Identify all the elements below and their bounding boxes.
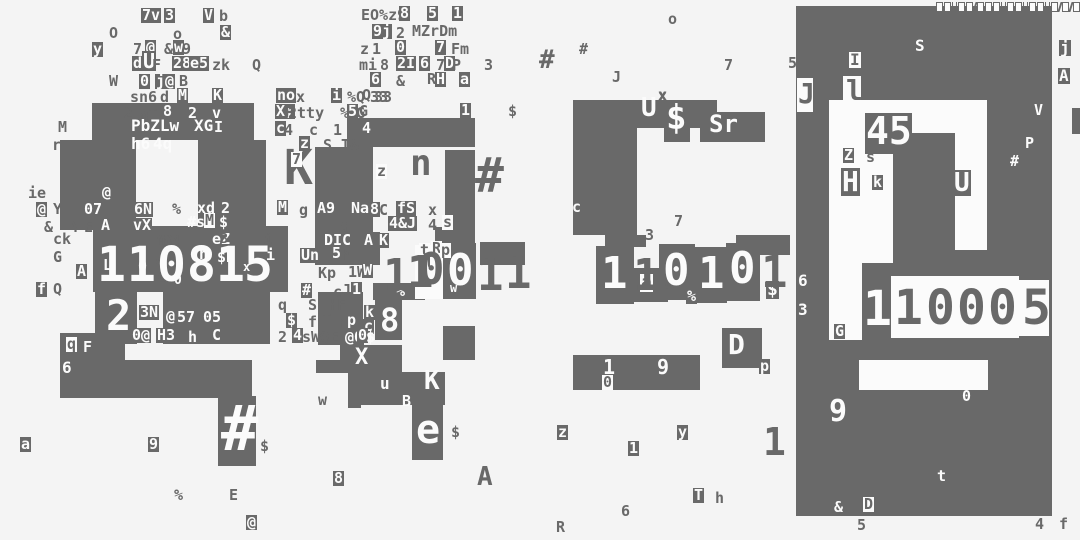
big-number-digit-group1: 1: [127, 241, 156, 289]
noise-char: 7: [724, 58, 733, 73]
noise-char: k: [872, 175, 883, 190]
noise-char: $: [666, 101, 686, 135]
noise-char: S: [323, 138, 332, 153]
noise-char: h: [341, 248, 350, 263]
noise-char: U: [641, 95, 657, 121]
noise-char: 5: [427, 6, 438, 21]
noise-char: 5: [788, 56, 797, 71]
noise-char: sn6: [130, 90, 157, 105]
big-number-digit-group2: 0: [447, 249, 474, 293]
noise-char: $: [366, 330, 375, 345]
noise-char: U: [953, 170, 971, 196]
noise-char: &: [220, 25, 231, 40]
noise-char: 4&J: [388, 216, 417, 231]
noise-char: A: [100, 218, 111, 233]
noise-char: c: [572, 200, 581, 215]
noise-char: 3: [798, 302, 808, 318]
noise-char: #: [539, 47, 555, 73]
noise-char: 7: [435, 40, 446, 55]
noise-char: K: [424, 368, 440, 394]
noise-char: 2: [106, 295, 131, 337]
noise-char: h: [188, 330, 197, 345]
noise-char: XG: [194, 118, 213, 134]
noise-char: j@: [155, 74, 175, 89]
big-number-digit-group4: 0: [926, 284, 955, 332]
noise-char: s: [866, 150, 875, 165]
top-right-marker-strip: [936, 2, 1080, 12]
noise-char: A9: [316, 201, 336, 216]
noise-char: 1: [372, 42, 381, 57]
noise-char: &: [44, 220, 53, 235]
noise-char: I: [213, 120, 224, 135]
big-number-digit-group3: 0: [663, 249, 690, 293]
noise-char: #: [579, 42, 588, 57]
noise-char: 0@: [131, 328, 151, 343]
noise-char: e: [416, 410, 440, 450]
noise-char: $: [508, 104, 517, 119]
big-number-digit-group2: 1: [477, 254, 504, 298]
noise-char: %: [174, 488, 183, 503]
big-number-digit-group4: 0: [957, 284, 986, 332]
noise-char: 3: [164, 8, 175, 23]
noise-char: c: [309, 123, 318, 138]
noise-char: 1: [763, 423, 786, 461]
strip-box-icon: [958, 2, 965, 12]
noise-char: a: [20, 437, 31, 452]
noise-char: Y: [53, 202, 62, 217]
noise-char: WQ: [311, 330, 329, 345]
noise-char: Sr: [709, 112, 738, 136]
noise-char: 7v: [141, 8, 161, 23]
noise-char: V: [1034, 103, 1043, 118]
noise-char: 07: [83, 202, 103, 217]
strip-bar-icon: [1023, 2, 1028, 12]
noise-char: #: [475, 152, 504, 200]
noise-char: p: [346, 313, 357, 328]
noise-char: o: [668, 12, 677, 27]
strip-box-icon: [944, 2, 951, 12]
noise-char: 0: [602, 375, 613, 390]
noise-char: 8: [399, 6, 410, 21]
big-number-digit-group1: 8: [187, 241, 216, 289]
noise-char: h: [715, 491, 724, 506]
strip-box-icon: [1015, 2, 1022, 12]
noise-char: q: [66, 337, 77, 352]
noise-char: W: [109, 74, 118, 89]
noise-char: y: [92, 42, 103, 57]
noise-char: H: [435, 72, 446, 87]
noise-char: T: [693, 488, 704, 503]
noise-char: 6N: [133, 202, 153, 217]
big-number-digit-group1: 0: [157, 241, 186, 289]
noise-char: #s: [187, 215, 205, 230]
noise-char: MZrDm: [412, 24, 457, 39]
noise-char: @: [36, 202, 47, 217]
noise-char: @: [165, 309, 176, 324]
noise-char: 1: [460, 103, 471, 118]
big-number-digit-group2: 0: [418, 248, 445, 292]
noise-char: 9: [829, 397, 847, 427]
noise-char: E: [229, 488, 238, 503]
noise-char: no: [276, 88, 296, 103]
noise-char: 6: [370, 72, 381, 87]
noise-char: f: [36, 282, 47, 297]
noise-char: M: [204, 213, 215, 228]
noise-char: W: [362, 263, 373, 278]
noise-char: 3: [484, 58, 493, 73]
noise-char: 4: [284, 123, 293, 138]
strip-bar-icon: [952, 2, 957, 12]
noise-char: PbZLw: [131, 118, 179, 134]
noise-char: M: [177, 88, 188, 103]
noise-char: $: [451, 425, 460, 440]
noise-char: i: [331, 88, 342, 103]
noise-char: 3: [645, 228, 654, 243]
noise-char: b: [219, 9, 228, 24]
noise-char: &: [396, 74, 405, 89]
noise-char: zk: [212, 58, 230, 73]
dark-noise-block: [573, 100, 637, 235]
noise-char: t: [937, 469, 946, 484]
noise-char: 7: [674, 214, 683, 229]
strip-bar-icon: [1001, 2, 1006, 12]
big-number-digit-group4: 1: [894, 284, 923, 332]
noise-char: 05: [203, 310, 221, 325]
noise-char: #: [1010, 154, 1019, 169]
noise-char: M: [58, 120, 67, 135]
noise-char: A: [1058, 68, 1070, 84]
noise-char: 4: [1035, 517, 1044, 532]
dark-noise-block: [1072, 108, 1080, 134]
noise-char: J: [798, 80, 815, 108]
noise-char: 1: [628, 441, 639, 456]
strip-box-icon: [1073, 2, 1080, 12]
noise-char: $: [218, 215, 229, 230]
noise-char: z: [557, 425, 568, 440]
noise-char: D: [728, 331, 745, 359]
noise-char: 2tty: [288, 106, 324, 121]
strip-box-icon: [1007, 2, 1014, 12]
noise-char: @: [102, 185, 111, 200]
noise-char: l: [846, 77, 863, 105]
noise-char: D: [863, 497, 874, 512]
noise-char: G: [834, 324, 845, 339]
big-number-digit-group4: 5: [1022, 284, 1051, 332]
noise-char: P: [1025, 136, 1034, 151]
noise-char: 45: [866, 112, 912, 150]
noise-char: A: [477, 464, 493, 490]
noise-char: 5: [857, 518, 866, 533]
noise-char: 4: [428, 218, 437, 233]
big-number-digit-group1: 1: [97, 241, 126, 289]
noise-char: f: [1059, 517, 1068, 532]
noise-char: Kp: [318, 266, 336, 281]
noise-char: C: [211, 328, 222, 343]
noise-char: #: [221, 398, 258, 460]
noise-char: K: [378, 233, 389, 248]
noise-char: B: [402, 394, 411, 409]
noise-char: r: [52, 138, 61, 153]
noise-char: 8: [380, 304, 399, 336]
noise-char: 8: [380, 58, 389, 73]
noise-char: M: [277, 200, 288, 215]
big-number-digit-group2: 1: [505, 252, 532, 296]
noise-char: T&: [341, 138, 359, 153]
noise-char: s: [302, 330, 311, 345]
noise-char: j: [1059, 40, 1071, 56]
noise-char: 8: [333, 471, 344, 486]
noise-char: Un: [300, 248, 320, 263]
noise-char: O: [109, 26, 118, 41]
big-number-digit-group3: 0: [729, 247, 756, 291]
noise-char: I: [849, 52, 861, 68]
light-cutout-block: [859, 360, 988, 390]
noise-char: 0: [139, 74, 150, 89]
strip-box-icon: [1029, 2, 1036, 12]
big-number-digit-group1: 1: [216, 241, 245, 289]
noise-char: Q: [53, 282, 62, 297]
noise-char: Na: [350, 201, 370, 216]
noise-char: Y: [71, 220, 80, 235]
noise-char: p: [759, 359, 770, 374]
noise-char: 1: [351, 282, 362, 297]
noise-char: 6: [798, 273, 808, 289]
noise-char: 2: [278, 330, 287, 345]
noise-char: F: [83, 340, 92, 355]
noise-char: R: [556, 520, 565, 535]
noise-char: S: [915, 38, 925, 54]
noise-char: C: [379, 203, 388, 218]
noise-char: 33: [370, 90, 388, 105]
noise-char: &: [834, 500, 843, 515]
noise-char: e5: [189, 56, 209, 71]
big-number-digit-group1: 5: [244, 241, 273, 289]
noise-char: 7: [291, 152, 302, 167]
noise-char: ck: [53, 232, 71, 247]
noise-char: x: [296, 90, 305, 105]
noise-char: F: [152, 58, 161, 73]
noise-char: K: [212, 88, 223, 103]
big-number-digit-group3: 1: [601, 252, 628, 296]
noise-char: vX: [132, 218, 152, 233]
noise-char: z: [360, 42, 369, 57]
noise-char: E: [330, 330, 339, 345]
noise-char: h6: [131, 136, 150, 152]
noise-char: Z: [843, 148, 854, 163]
noise-char: 3N: [139, 305, 159, 320]
noise-char: y: [677, 425, 688, 440]
noise-char: 4q: [153, 136, 172, 152]
noise-char: 2I: [396, 56, 416, 71]
dark-noise-block: [443, 326, 475, 360]
strip-box-icon: [993, 2, 1000, 12]
noise-char: %: [172, 202, 181, 217]
noise-char: 1: [452, 6, 463, 21]
noise-char: a: [459, 72, 470, 87]
strip-bar-icon: [1045, 2, 1050, 12]
big-number-digit-group3: 1: [633, 254, 660, 298]
noise-char: S: [308, 298, 317, 313]
noise-char: H: [841, 168, 860, 196]
noise-char: g: [299, 203, 308, 218]
noise-char: z: [376, 164, 387, 179]
noise-char: Q: [252, 58, 261, 73]
noise-char: 57: [177, 310, 195, 325]
noise-char: 9j: [372, 24, 392, 39]
noise-char: T: [322, 313, 331, 328]
dark-noise-block: [573, 355, 700, 390]
noise-char: s: [442, 215, 453, 230]
strip-box-icon: [936, 2, 943, 12]
big-number-digit-group4: 1: [863, 285, 892, 333]
noise-char: A: [76, 264, 87, 279]
noise-char: H3: [156, 328, 176, 343]
strip-box-icon: [1037, 2, 1044, 12]
ascii-noise-canvas: 7v3VbOo&y7@&w9dUF28e5zkQW0j@Bsn6dMK2mT82…: [0, 0, 1080, 540]
strip-box-icon: [977, 2, 984, 12]
noise-char: 9: [657, 357, 669, 377]
noise-char: &: [164, 42, 173, 57]
noise-char: n: [410, 146, 432, 182]
noise-char: 6: [62, 360, 72, 376]
noise-char: 6: [419, 56, 430, 71]
big-number-digit-group2: 1: [383, 254, 410, 298]
noise-char: u: [380, 376, 390, 392]
noise-char: X: [355, 347, 368, 369]
big-number-digit-group3: 1: [761, 251, 788, 295]
dark-noise-block: [340, 345, 402, 373]
big-number-digit-group4: 0: [988, 284, 1017, 332]
noise-char: 6: [621, 504, 630, 519]
noise-char: 0: [962, 389, 971, 404]
noise-char: V: [203, 8, 214, 23]
noise-char: 4: [362, 121, 371, 136]
noise-char: @: [246, 515, 257, 530]
strip-box-icon: [985, 2, 992, 12]
noise-char: J: [612, 70, 621, 85]
noise-char: G: [53, 250, 62, 265]
noise-char: ie: [28, 186, 46, 201]
noise-char: $: [260, 439, 269, 454]
noise-char: E: [84, 220, 93, 235]
big-number-digit-group3: 1: [698, 252, 725, 296]
noise-char: 0: [395, 40, 406, 55]
noise-char: 9: [148, 437, 159, 452]
noise-char: A: [363, 233, 374, 248]
noise-char: w: [318, 393, 327, 408]
noise-char: q: [278, 298, 287, 313]
